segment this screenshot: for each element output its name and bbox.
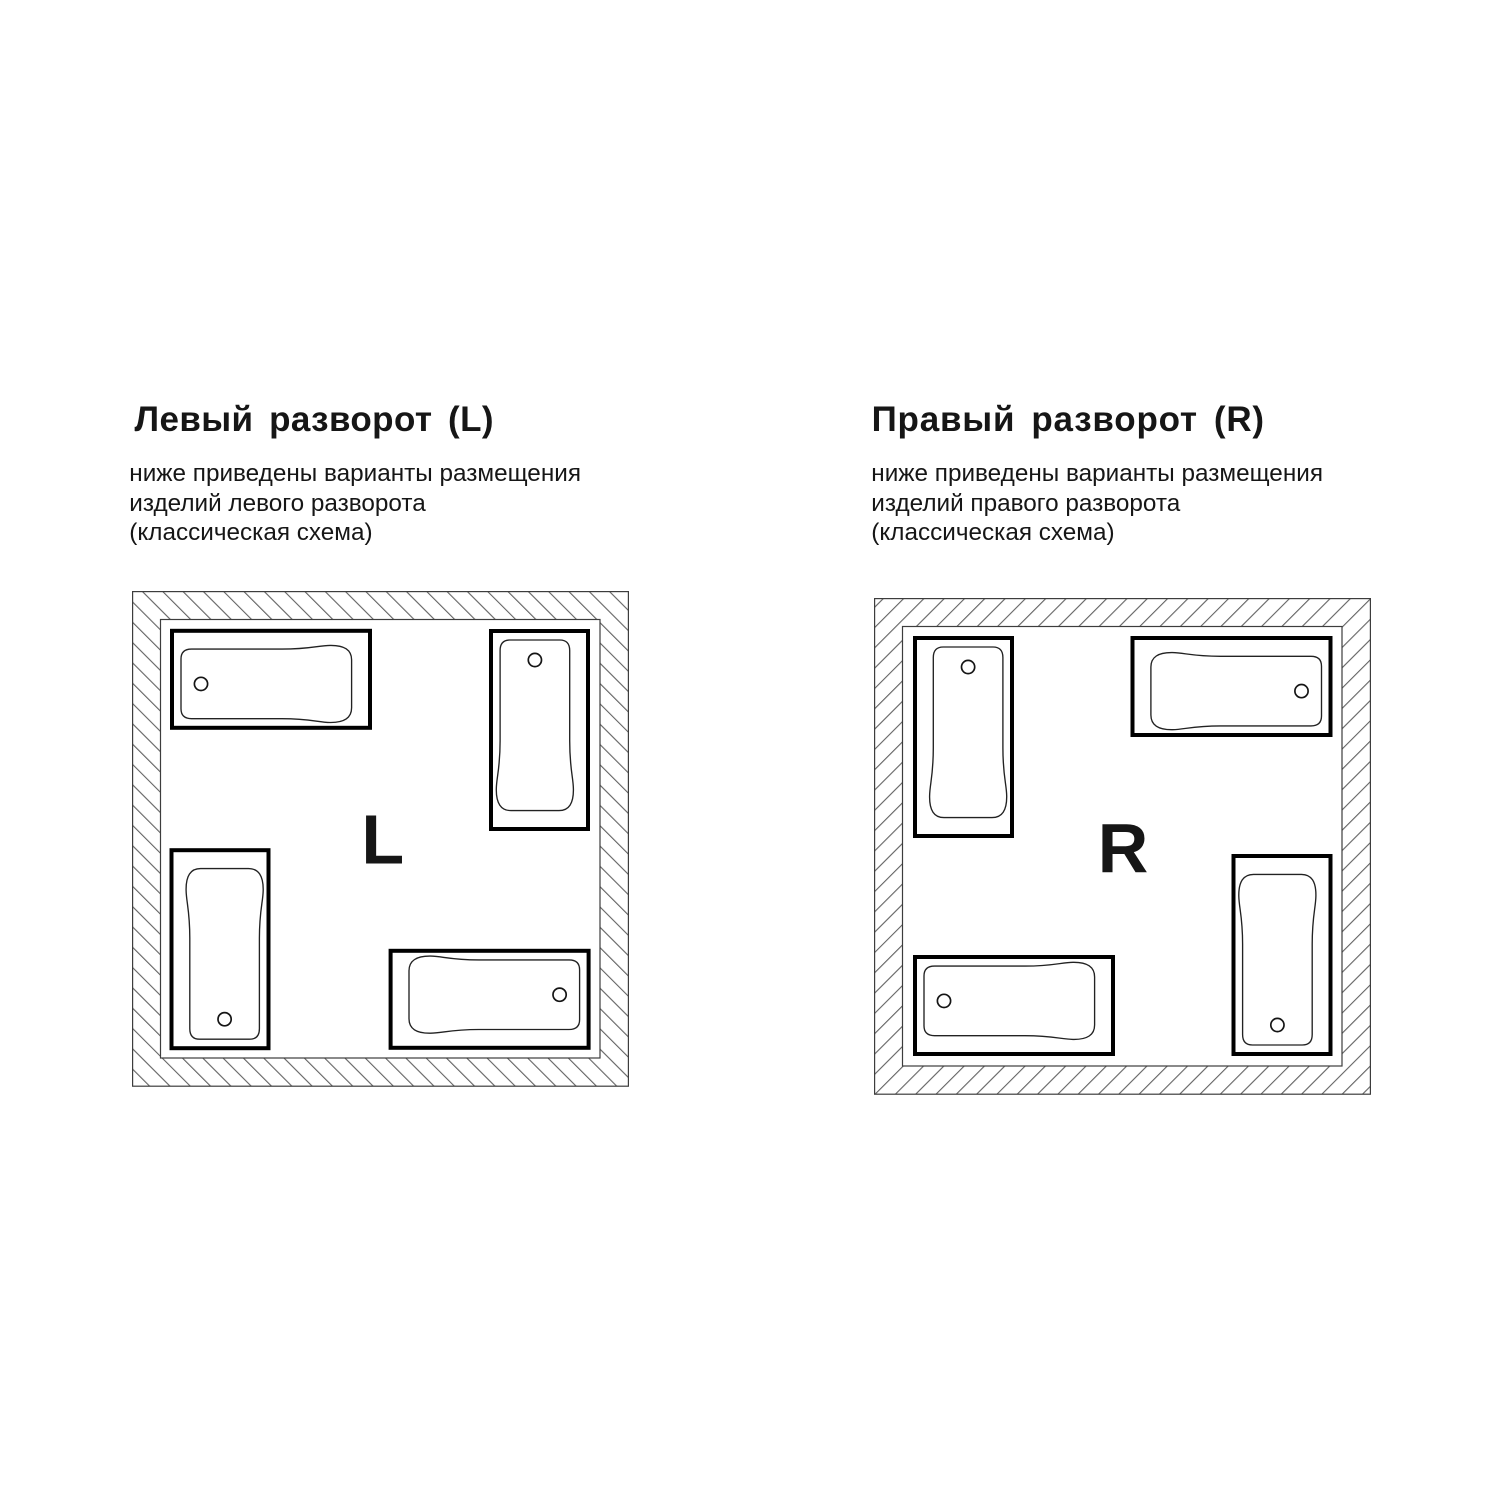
- svg-text:L: L: [361, 801, 404, 879]
- svg-text:R: R: [1097, 809, 1148, 887]
